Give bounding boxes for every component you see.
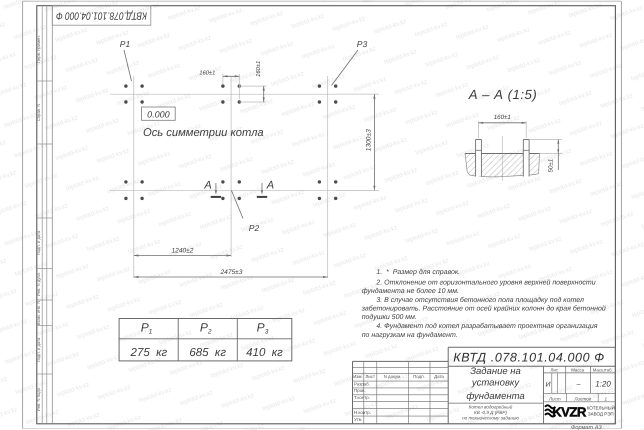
svg-text:КОТЕЛЬНЫЙ: КОТЕЛЬНЫЙ <box>587 405 615 411</box>
svg-text:–: – <box>576 381 581 388</box>
svg-text:P1: P1 <box>120 39 131 49</box>
svg-text:Инв. N подл.: Инв. N подл. <box>36 387 41 412</box>
svg-text:1240±2: 1240±2 <box>172 247 194 254</box>
svg-text:фундамента: фундамента <box>466 391 524 402</box>
svg-text:Справ. N: Справ. N <box>36 104 41 122</box>
svg-text:Лист: Лист <box>365 374 375 379</box>
svg-text:забетонировать. Расстояние от: забетонировать. Расстояние от осей крайн… <box>361 304 606 312</box>
svg-text:275 кг: 275 кг <box>130 347 168 359</box>
svg-text:Лист: Лист <box>548 396 561 401</box>
svg-text:Формат А3: Формат А3 <box>571 425 602 430</box>
svg-text:И: И <box>545 382 551 389</box>
svg-text:А – А (1:5): А – А (1:5) <box>468 87 538 102</box>
svg-text:Пров.: Пров. <box>354 388 366 393</box>
svg-text:Р3: Р3 <box>257 321 269 336</box>
svg-text:160±1: 160±1 <box>494 114 511 121</box>
svg-text:Ось симметрии котла: Ось симметрии котла <box>143 127 264 139</box>
svg-text:Масса: Масса <box>571 367 585 372</box>
svg-text:P2: P2 <box>249 223 260 233</box>
svg-text:ЗАВОД РЭП: ЗАВОД РЭП <box>588 411 614 416</box>
svg-text:Изм.: Изм. <box>353 374 362 379</box>
svg-text:160±1: 160±1 <box>255 61 262 77</box>
svg-text:0.000: 0.000 <box>147 109 170 119</box>
svg-text:4. Фундамент под котел разраба: 4. Фундамент под котел разрабатывает про… <box>376 322 597 330</box>
svg-text:установку: установку <box>471 377 521 388</box>
svg-text:Разраб.: Разраб. <box>354 381 370 386</box>
svg-text:2. Отклонение от горизонтально: 2. Отклонение от горизонтального уровня … <box>375 278 595 286</box>
svg-text:1. * Размер для справок.: 1. * Размер для справок. <box>376 268 460 276</box>
svg-text:Утв.: Утв. <box>354 417 362 422</box>
svg-text:Н.контр.: Н.контр. <box>354 410 371 415</box>
svg-text:КВТД.078.101.04.000 Ф: КВТД.078.101.04.000 Ф <box>56 10 147 22</box>
svg-text:50±1: 50±1 <box>547 159 554 173</box>
svg-text:KVZR: KVZR <box>552 405 587 420</box>
svg-text:КВТД .078.101.04.000 Ф: КВТД .078.101.04.000 Ф <box>453 350 604 364</box>
svg-text:Лит.: Лит. <box>551 367 559 372</box>
svg-text:Дата: Дата <box>434 374 444 379</box>
svg-text:Листов: Листов <box>573 396 591 401</box>
svg-text:Перв. примен.: Перв. примен. <box>36 35 41 63</box>
svg-text:по нагрузкам на фундамент.: по нагрузкам на фундамент. <box>362 331 458 339</box>
svg-text:Задание на: Задание на <box>470 366 521 377</box>
svg-text:Подп. и дата: Подп. и дата <box>36 230 41 255</box>
svg-text:1300±3: 1300±3 <box>366 129 373 151</box>
svg-text:410 кг: 410 кг <box>246 347 283 359</box>
svg-text:160±1: 160±1 <box>199 70 215 77</box>
svg-text:Масштаб: Масштаб <box>593 367 612 372</box>
svg-text:2475±3: 2475±3 <box>220 269 243 276</box>
svg-text:КВ -0,9 Д (РВР): КВ -0,9 Д (РВР) <box>474 410 507 415</box>
svg-text:подушки 500 мм.: подушки 500 мм. <box>362 313 417 321</box>
svg-text:Р1: Р1 <box>141 321 153 336</box>
svg-text:685 кг: 685 кг <box>189 347 226 359</box>
svg-text:P3: P3 <box>357 39 368 49</box>
svg-text:Р2: Р2 <box>200 321 212 336</box>
svg-text:А: А <box>266 179 274 191</box>
svg-text:Подп.: Подп. <box>413 374 425 379</box>
svg-text:1: 1 <box>605 396 608 401</box>
svg-text:Т.контр.: Т.контр. <box>354 395 370 400</box>
svg-text:N докум.: N докум. <box>384 374 402 379</box>
svg-text:фундамента не более 10 мм.: фундамента не более 10 мм. <box>362 287 459 295</box>
svg-text:3. В случае отсутствия бетонно: 3. В случае отсутствия бетонного пола пл… <box>376 296 584 304</box>
svg-text:по техническому заданию: по техническому заданию <box>462 416 519 421</box>
svg-text:Взам. инв. N: Взам. инв. N <box>36 301 41 325</box>
svg-text:Котел водогрейный: Котел водогрейный <box>469 405 513 410</box>
svg-text:Инв. N дубл.: Инв. N дубл. <box>36 272 41 296</box>
svg-text:Подп. и дата: Подп. и дата <box>36 337 41 362</box>
svg-text:1:20: 1:20 <box>595 380 611 389</box>
svg-text:А: А <box>203 179 211 191</box>
